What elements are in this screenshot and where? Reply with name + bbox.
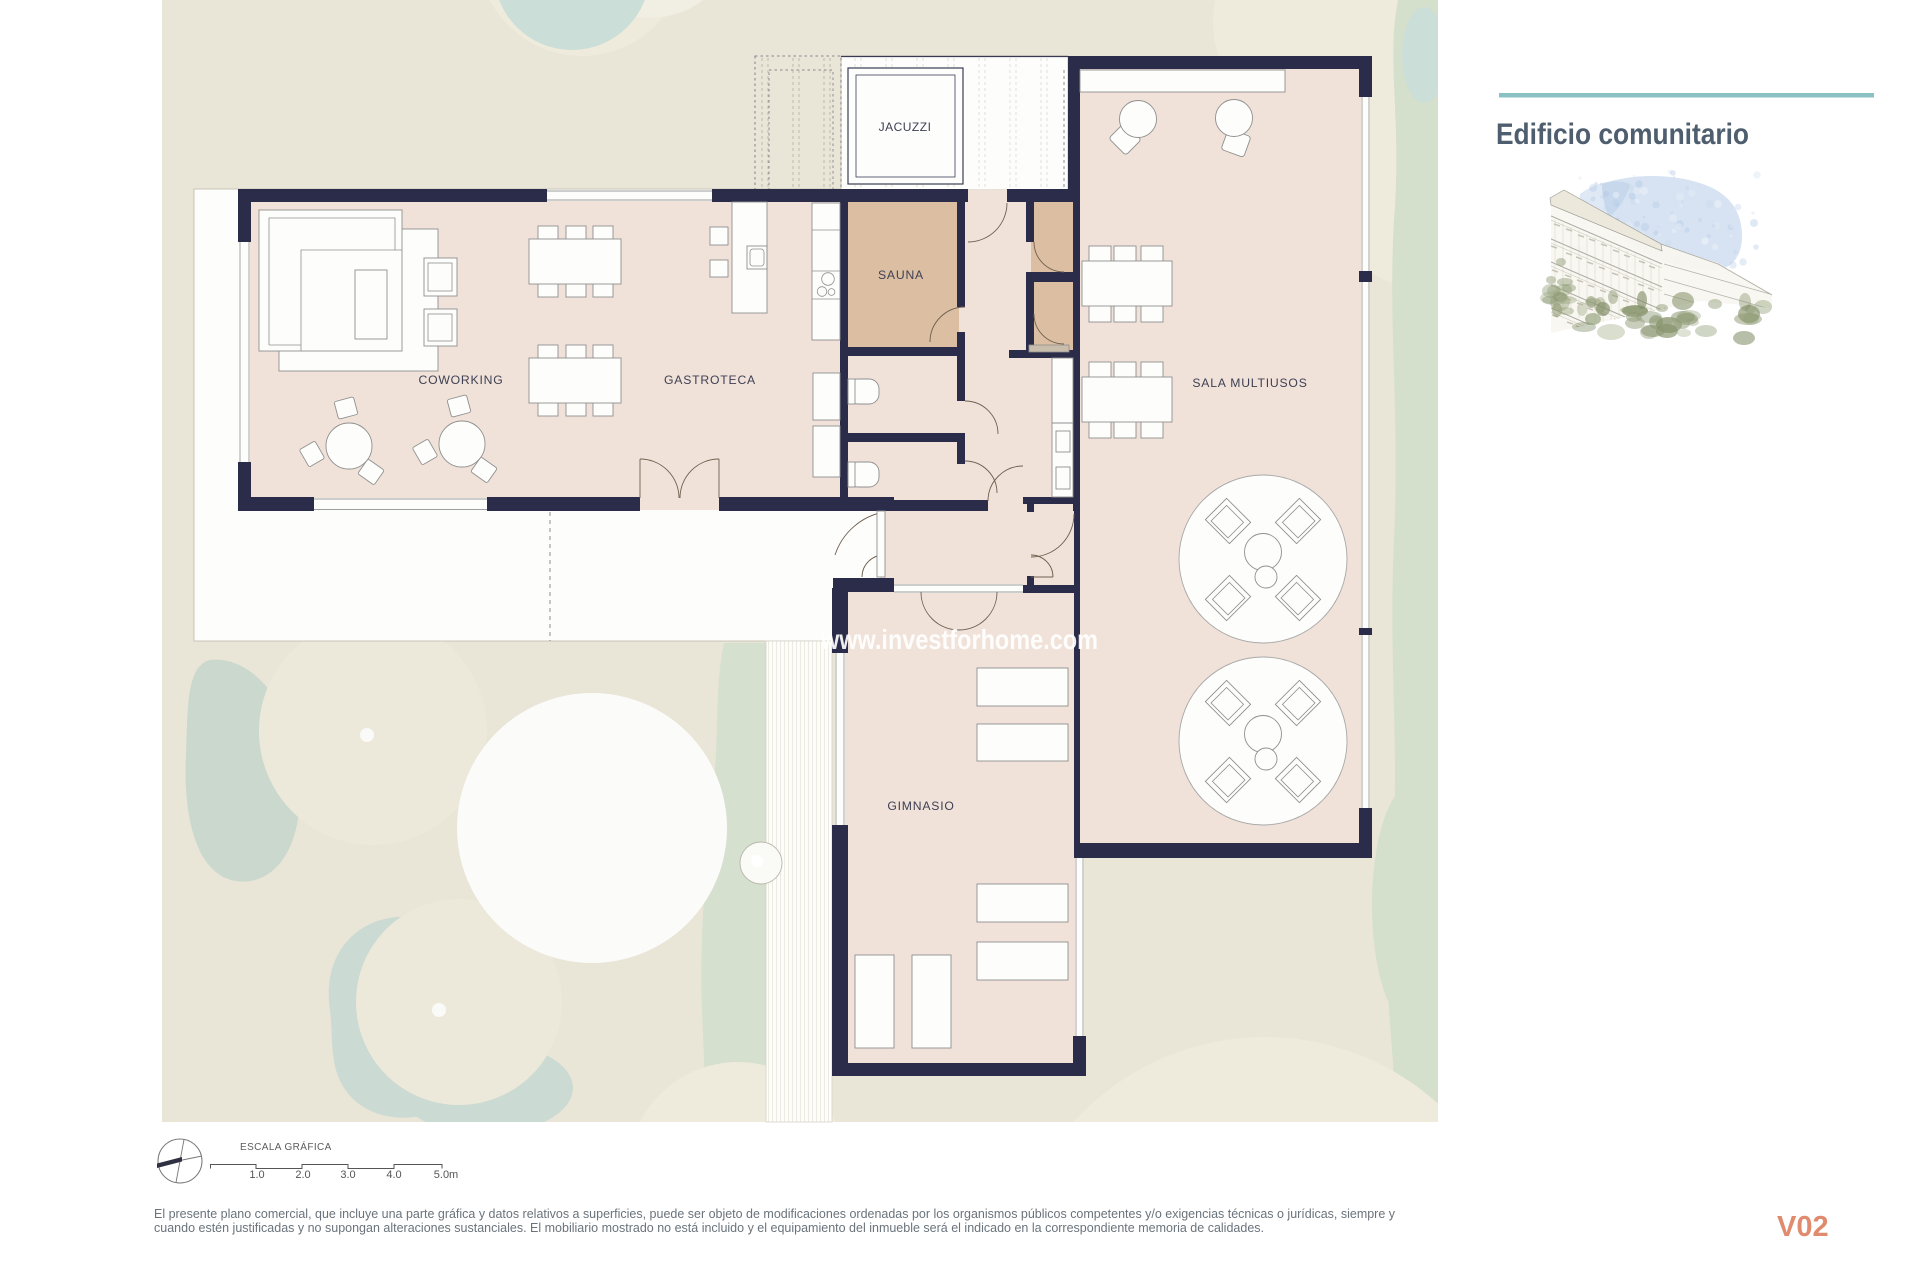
svg-text:3.0: 3.0	[340, 1169, 355, 1181]
svg-text:COWORKING: COWORKING	[418, 373, 503, 387]
svg-text:El presente plano comercial, q: El presente plano comercial, que incluye…	[154, 1206, 1395, 1221]
svg-text:V02: V02	[1777, 1211, 1829, 1243]
svg-text:SAUNA: SAUNA	[878, 268, 924, 282]
svg-text:www.investforhome.com: www.investforhome.com	[820, 624, 1098, 655]
svg-text:5.0m: 5.0m	[434, 1169, 458, 1181]
svg-text:ESCALA GRÁFICA: ESCALA GRÁFICA	[240, 1140, 332, 1153]
svg-text:SALA MULTIUSOS: SALA MULTIUSOS	[1192, 376, 1307, 390]
svg-text:cuando estén justificadas y no: cuando estén justificadas y no supongan …	[154, 1220, 1264, 1235]
svg-text:4.0: 4.0	[386, 1169, 401, 1181]
svg-text:GIMNASIO: GIMNASIO	[887, 799, 954, 813]
svg-text:Edificio comunitario: Edificio comunitario	[1496, 118, 1749, 151]
svg-text:1.0: 1.0	[249, 1169, 264, 1181]
svg-text:GASTROTECA: GASTROTECA	[664, 373, 756, 387]
svg-text:JACUZZI: JACUZZI	[879, 120, 932, 134]
svg-text:2.0: 2.0	[295, 1169, 310, 1181]
